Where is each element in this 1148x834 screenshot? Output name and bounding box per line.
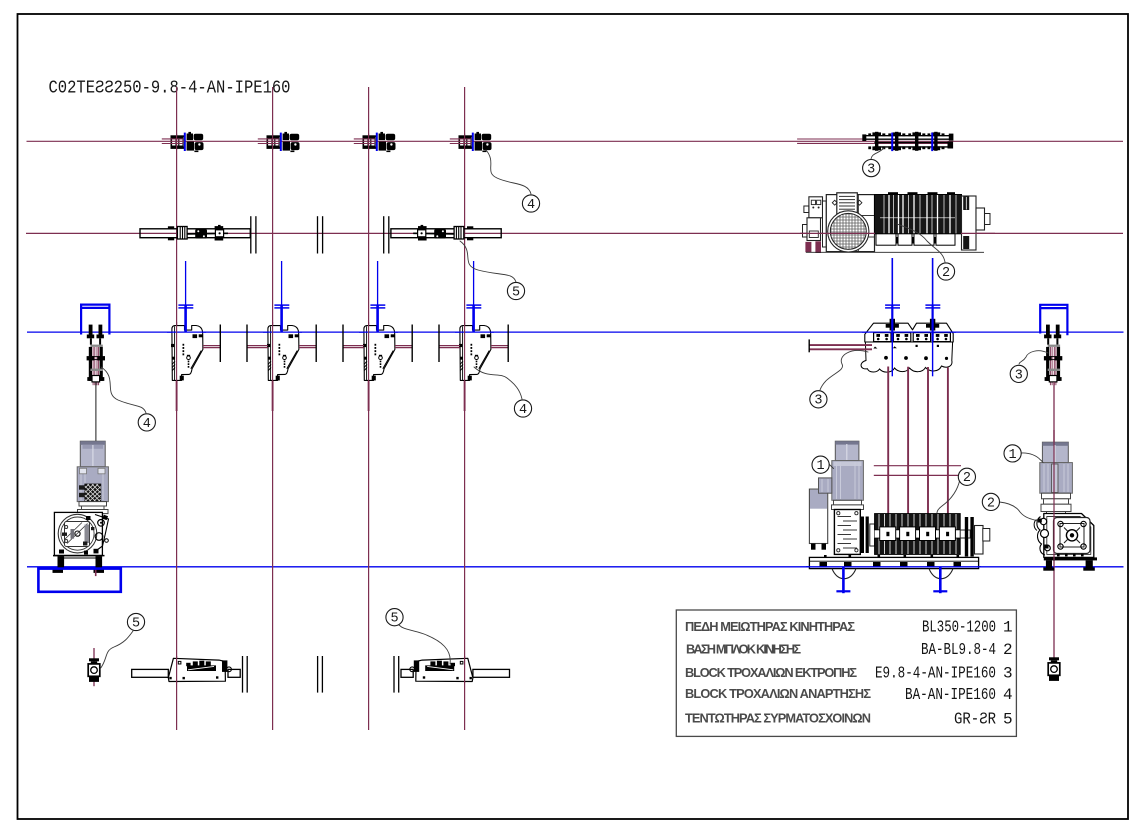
svg-text:1: 1 (1009, 448, 1017, 463)
svg-text:3: 3 (814, 394, 822, 409)
svg-text:ΠΕΔΗ ΜΕΙΩΤΗΡΑΣ ΚΙΝΗΤΗΡΑΣ: ΠΕΔΗ ΜΕΙΩΤΗΡΑΣ ΚΙΝΗΤΗΡΑΣ (685, 619, 855, 634)
svg-text:1: 1 (1003, 619, 1013, 637)
svg-text:2: 2 (987, 496, 995, 511)
svg-text:BLOCK ΤΡΟΧΑΛΙΩΝ ΕΚΤΡΟΠΗΣ: BLOCK ΤΡΟΧΑΛΙΩΝ ΕΚΤΡΟΠΗΣ (685, 665, 857, 680)
svg-text:BA-AN-IPE160: BA-AN-IPE160 (905, 685, 996, 704)
svg-text:3: 3 (1015, 368, 1023, 383)
svg-text:2: 2 (942, 266, 950, 281)
svg-text:BA-BL9.8-4: BA-BL9.8-4 (921, 640, 996, 659)
svg-text:4: 4 (1003, 686, 1013, 704)
svg-text:5: 5 (512, 285, 520, 300)
svg-text:2: 2 (963, 471, 971, 486)
svg-text:4: 4 (519, 403, 527, 418)
svg-text:ΤΕΝΤΩΤΗΡΑΣ ΣΥΡΜΑΤΟΣΧΟΙΝΩΝ: ΤΕΝΤΩΤΗΡΑΣ ΣΥΡΜΑΤΟΣΧΟΙΝΩΝ (685, 711, 871, 726)
svg-text:4: 4 (143, 417, 151, 432)
svg-text:5: 5 (390, 612, 398, 627)
svg-text:E9.8-4-AN-IPE160: E9.8-4-AN-IPE160 (875, 664, 996, 683)
svg-text:5: 5 (1003, 711, 1013, 729)
svg-text:4: 4 (527, 198, 535, 213)
svg-text:3: 3 (1003, 665, 1013, 683)
svg-text:BLOCK ΤΡΟΧΑΛΙΩΝ ΑΝΑΡΤΗΣΗΣ: BLOCK ΤΡΟΧΑΛΙΩΝ ΑΝΑΡΤΗΣΗΣ (685, 686, 871, 701)
svg-text:5: 5 (132, 616, 140, 631)
svg-text:C02TEƧƧ250-9.8-4-AN-IPE160: C02TEƧƧ250-9.8-4-AN-IPE160 (49, 79, 291, 99)
svg-text:ΒΑΣΗ ΜΠΛΟΚ ΚΙΝΗΣΗΣ: ΒΑΣΗ ΜΠΛΟΚ ΚΙΝΗΣΗΣ (686, 641, 801, 656)
svg-text:BL350-1200: BL350-1200 (922, 618, 996, 637)
svg-text:3: 3 (867, 163, 875, 178)
svg-text:2: 2 (1003, 641, 1013, 659)
svg-text:GR-ƧR: GR-ƧR (954, 710, 996, 729)
svg-text:1: 1 (817, 459, 825, 474)
